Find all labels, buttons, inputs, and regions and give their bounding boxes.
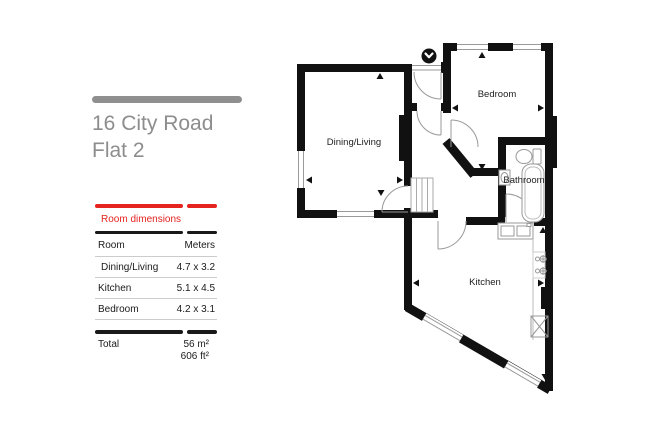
- kitchen-faucet: [527, 224, 531, 227]
- window: [296, 151, 306, 188]
- wall: [404, 103, 417, 111]
- entrance-marker-icon: [422, 49, 437, 64]
- room-label-dining-living: Dining/Living: [327, 137, 381, 148]
- door-arc: [417, 111, 441, 135]
- dimension-arrow: [377, 73, 384, 79]
- kitchen-column: [541, 287, 551, 309]
- chimney-breast: [399, 115, 412, 161]
- room-label-kitchen: Kitchen: [469, 277, 501, 288]
- entrance-threshold: [412, 63, 441, 73]
- window: [506, 365, 539, 384]
- room-label-bedroom: Bedroom: [478, 89, 517, 100]
- stairs: [411, 178, 433, 212]
- dimension-arrow: [397, 177, 403, 184]
- stove-burner: [536, 257, 540, 261]
- dimension-arrow: [452, 105, 458, 112]
- wall: [470, 168, 498, 176]
- wall: [404, 218, 412, 310]
- kitchen-sink-basin: [501, 226, 514, 236]
- door-arc: [414, 72, 441, 99]
- window: [337, 209, 374, 219]
- dimension-arrow: [306, 177, 312, 184]
- dimension-arrow: [413, 280, 419, 287]
- wall: [297, 64, 412, 72]
- dimension-arrow: [538, 105, 544, 112]
- dimension-arrow: [378, 190, 385, 196]
- wall: [443, 43, 451, 113]
- wall: [498, 137, 553, 145]
- room-label-bathroom: Bathroom: [503, 175, 544, 186]
- door-arc: [438, 221, 466, 249]
- door-arc: [451, 120, 478, 147]
- dimension-arrow: [538, 280, 544, 287]
- toilet-tank: [533, 149, 541, 164]
- kitchen-sink-basin: [517, 226, 530, 236]
- stove-burner: [536, 269, 540, 273]
- wall-diagonal: [446, 141, 474, 175]
- toilet-bowl: [516, 150, 532, 164]
- floorplan-page: 16 City Road Flat 2 Room dimensions Room…: [0, 0, 650, 433]
- dimension-arrow: [479, 52, 486, 58]
- wall: [297, 64, 305, 218]
- window: [457, 42, 488, 52]
- window: [513, 42, 541, 52]
- floor-plan: Dining/Living Bedroom Bathroom Kitchen: [0, 0, 650, 433]
- window: [424, 317, 461, 339]
- wall: [466, 217, 502, 225]
- wall: [551, 116, 557, 168]
